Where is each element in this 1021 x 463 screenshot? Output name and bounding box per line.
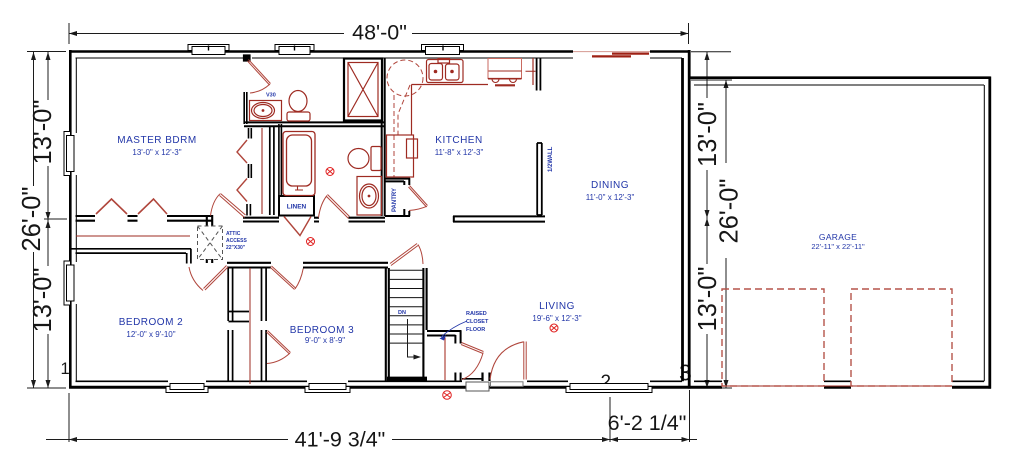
svg-text:MASTER BDRM: MASTER BDRM (117, 135, 196, 146)
svg-text:13'-0": 13'-0" (29, 268, 57, 333)
svg-text:11'-0" x 12'-3": 11'-0" x 12'-3" (586, 193, 635, 202)
svg-text:GARAGE: GARAGE (819, 232, 857, 242)
svg-text:LIVING: LIVING (539, 301, 575, 312)
svg-text:BEDROOM 2: BEDROOM 2 (119, 317, 184, 328)
svg-text:V30: V30 (266, 93, 276, 99)
svg-text:1/2WALL: 1/2WALL (548, 146, 554, 172)
svg-text:22'-11" x 22'-11": 22'-11" x 22'-11" (811, 242, 865, 251)
svg-text:1: 1 (61, 360, 70, 378)
svg-text:CLOSET: CLOSET (466, 319, 489, 325)
svg-text:13'-0": 13'-0" (694, 267, 722, 332)
svg-text:6'-2 1/4": 6'-2 1/4" (608, 411, 687, 435)
svg-text:KITCHEN: KITCHEN (435, 135, 482, 146)
svg-text:PANTRY: PANTRY (392, 188, 398, 212)
svg-text:22"X30": 22"X30" (226, 245, 246, 251)
svg-text:48'-0": 48'-0" (352, 21, 407, 45)
svg-text:RAISED: RAISED (466, 311, 487, 317)
svg-text:9'-0" x 8'-9": 9'-0" x 8'-9" (305, 336, 345, 345)
svg-text:ACCESS: ACCESS (226, 238, 248, 244)
svg-text:DINING: DINING (591, 180, 629, 191)
svg-text:26'-0": 26'-0" (716, 179, 744, 244)
svg-text:13'-0" x 12'-3": 13'-0" x 12'-3" (132, 148, 181, 157)
svg-text:12'-0" x 9'-10": 12'-0" x 9'-10" (126, 330, 175, 339)
svg-text:DN: DN (398, 310, 406, 316)
svg-text:26'-0": 26'-0" (18, 187, 46, 252)
svg-text:13'-0": 13'-0" (29, 100, 57, 165)
svg-text:ATTIC: ATTIC (226, 231, 241, 237)
svg-text:BEDROOM 3: BEDROOM 3 (290, 325, 355, 336)
svg-text:19'-6" x 12'-3": 19'-6" x 12'-3" (532, 314, 581, 323)
svg-text:FLOOR: FLOOR (466, 327, 485, 333)
svg-text:11'-8" x 12'-3": 11'-8" x 12'-3" (435, 148, 484, 157)
svg-text:13'-0": 13'-0" (694, 102, 722, 167)
svg-text:41'-9 3/4": 41'-9 3/4" (295, 428, 386, 452)
svg-text:LINEN: LINEN (287, 204, 307, 211)
